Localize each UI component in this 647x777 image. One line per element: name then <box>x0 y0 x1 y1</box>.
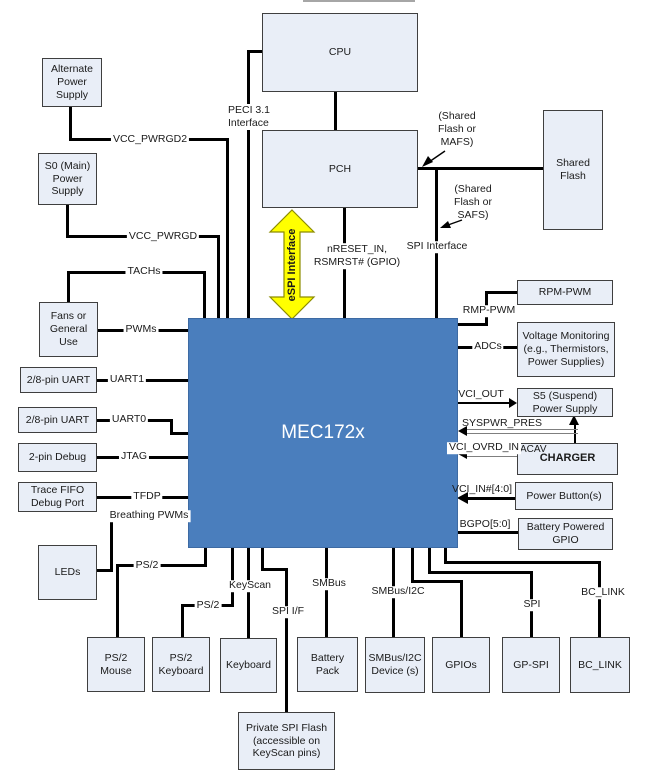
mafs-callout-arrow <box>420 148 448 170</box>
box-voltage-monitoring: Voltage Monitoring (e.g., Thermistors, P… <box>517 322 615 377</box>
charger-acav-label: ACAV <box>520 444 547 456</box>
box-uart1: 2/8-pin UART <box>20 367 97 393</box>
box-battery-pack: Battery Pack <box>297 637 358 692</box>
wire-tachs-right <box>203 271 206 318</box>
wire-keyscan <box>247 548 250 638</box>
label-smbus: SMBus <box>310 578 348 590</box>
label-keyscan: KeyScan <box>227 580 273 592</box>
wire-spiif-v2 <box>285 568 288 712</box>
wire-vci-out <box>458 402 510 404</box>
wire-spi-h <box>428 571 533 574</box>
wire-tachs-left <box>67 271 70 302</box>
wire-bclink-v2 <box>598 561 601 637</box>
box-charger: ACAV CHARGER <box>517 443 618 475</box>
label-vcc-pwrgd2: VCC_PWRGD2 <box>111 134 189 146</box>
box-battery-powered-gpio: Battery Powered GPIO <box>518 518 613 550</box>
box-alternate-power-supply: Alternate Power Supply <box>42 58 102 107</box>
label-adcs: ADCs <box>472 341 503 353</box>
wire-vci-in <box>466 497 515 500</box>
box-leds: LEDs <box>38 545 97 600</box>
espi-arrow: eSPI Interface <box>270 210 314 319</box>
wire-smbus <box>325 548 328 637</box>
label-vci-in: VCI_IN#[4:0] <box>450 484 514 496</box>
box-fans-general-use: Fans or General Use <box>39 302 98 357</box>
label-spi-interface: SPI Interface <box>405 241 470 253</box>
label-peci: PECI 3.1 Interface <box>227 104 271 130</box>
arrowhead-vci-out <box>509 398 517 408</box>
label-vci-out: VCI_OUT <box>456 389 506 401</box>
box-smbus-i2c-device: SMBus/I2C Device (s) <box>365 637 425 693</box>
label-jtag: JTAG <box>119 451 149 463</box>
wire-ps2b-v2 <box>181 604 184 637</box>
wire-peci-v <box>247 50 250 318</box>
charger-label: CHARGER <box>540 452 596 465</box>
wire-cpu-pch <box>334 92 337 130</box>
label-spi-if: SPI I/F <box>270 606 306 618</box>
box-s0-main-power-supply: S0 (Main) Power Supply <box>38 153 97 205</box>
label-bgpo: BGPO[5:0] <box>458 519 513 531</box>
label-uart1: UART1 <box>108 374 146 386</box>
wire-rmppwm-h1 <box>458 323 488 326</box>
block-diagram: eSPI Interface Alternate Power Supply S0… <box>0 0 647 777</box>
label-pwms: PWMs <box>124 324 159 336</box>
wire-rmppwm-h2 <box>485 291 517 294</box>
label-rmp-pwm: RMP-PWM <box>461 305 518 317</box>
wire-bclink-h <box>444 561 601 564</box>
wire-leds-stub <box>97 569 112 572</box>
box-ps2-mouse: PS/2 Mouse <box>87 637 145 692</box>
wire-spiif-h <box>261 568 288 571</box>
espi-arrow-label: eSPI Interface <box>286 229 298 302</box>
label-safs: (Shared Flash or SAFS) <box>453 183 493 221</box>
label-breathing-pwms: Breathing PWMs <box>108 510 191 522</box>
wire-vcc-pwrgd2-v <box>226 138 229 318</box>
wire-breathing-v <box>110 515 113 572</box>
label-spi: SPI <box>522 599 543 611</box>
wire-ps2b-v1 <box>231 548 234 607</box>
label-nreset: nRESET_IN, RSMRST# (GPIO) <box>313 243 401 269</box>
box-trace-fifo-debug-port: Trace FIFO Debug Port <box>18 482 97 512</box>
label-ps2-keyboard: PS/2 <box>195 600 222 612</box>
wire-ps2a-v2 <box>116 564 119 637</box>
box-2pin-debug: 2-pin Debug <box>18 443 97 472</box>
box-gp-spi: GP-SPI <box>502 637 560 693</box>
box-pch: PCH <box>262 130 418 208</box>
wire-gpios-v2 <box>460 580 463 637</box>
wire-uart0-h2 <box>170 432 188 435</box>
label-vcc-pwrgd: VCC_PWRGD <box>127 231 199 243</box>
wire-alt-power-drop <box>69 107 72 140</box>
box-rpm-pwm: RPM-PWM <box>517 280 613 305</box>
label-tachs: TACHs <box>125 266 162 278</box>
box-ps2-keyboard: PS/2 Keyboard <box>152 637 210 692</box>
label-vci-ovrd-in: VCI_OVRD_IN <box>447 442 521 454</box>
box-bc-link: BC_LINK <box>570 637 630 693</box>
label-syspwr-pres: SYSPWR_PRES <box>460 418 544 430</box>
box-private-spi-flash: Private SPI Flash (accessible on KeyScan… <box>238 712 335 770</box>
wire-bgpo <box>458 531 518 534</box>
box-gpios: GPIOs <box>432 637 490 693</box>
wire-charger-s5 <box>574 425 576 443</box>
box-keyboard: Keyboard <box>220 638 277 693</box>
label-mafs: (Shared Flash or MAFS) <box>437 110 477 148</box>
label-ps2-mouse: PS/2 <box>134 560 161 572</box>
wire-s0-drop <box>66 205 69 238</box>
wire-gpios-v1 <box>411 548 414 583</box>
label-smbus-i2c: SMBus/I2C <box>369 586 426 598</box>
label-bc-link: BC_LINK <box>579 587 627 599</box>
wire-vcc-pwrgd-v <box>217 235 220 318</box>
label-tfdp: TFDP <box>131 491 162 503</box>
label-uart0: UART0 <box>110 414 148 426</box>
wire-ps2a-h <box>116 564 207 567</box>
box-uart0: 2/8-pin UART <box>18 407 97 433</box>
page-crop-line <box>303 0 415 2</box>
chip-mec172x: MEC172x <box>188 318 458 548</box>
wire-gpios-h <box>411 580 463 583</box>
box-shared-flash: Shared Flash <box>543 110 603 230</box>
box-cpu: CPU <box>262 13 418 92</box>
box-s5-suspend-power-supply: S5 (Suspend) Power Supply <box>517 388 613 417</box>
box-power-buttons: Power Button(s) <box>515 482 613 510</box>
